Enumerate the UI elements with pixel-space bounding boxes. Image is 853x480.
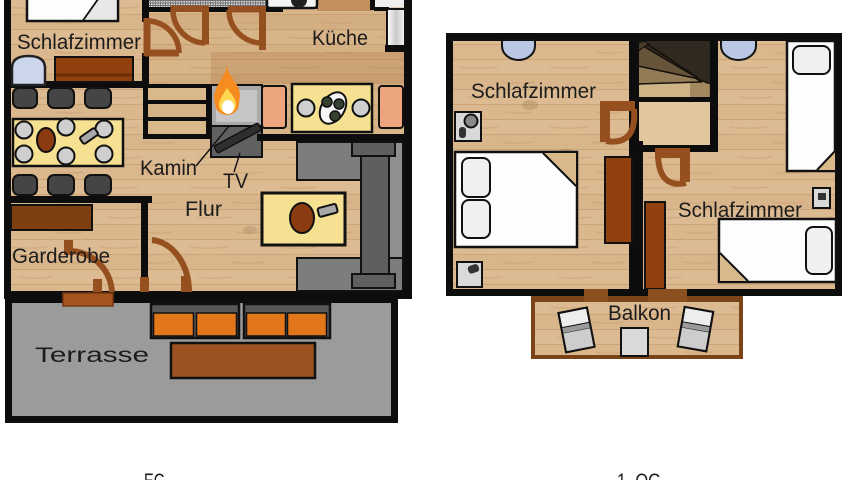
svg-text:Terrasse: Terrasse <box>35 344 149 367</box>
svg-text:Küche: Küche <box>312 27 368 50</box>
svg-text:1. OG: 1. OG <box>617 470 661 480</box>
svg-text:Garderobe: Garderobe <box>12 245 110 268</box>
svg-text:Schlafzimmer: Schlafzimmer <box>17 30 141 54</box>
svg-text:Balkon: Balkon <box>608 302 671 325</box>
svg-text:Kamin: Kamin <box>140 157 197 180</box>
svg-text:TV: TV <box>223 170 248 193</box>
svg-text:Flur: Flur <box>185 198 222 221</box>
svg-text:Schlafzimmer: Schlafzimmer <box>678 199 802 222</box>
svg-text:Schlafzimmer: Schlafzimmer <box>471 80 596 103</box>
svg-text:EG: EG <box>144 470 165 480</box>
